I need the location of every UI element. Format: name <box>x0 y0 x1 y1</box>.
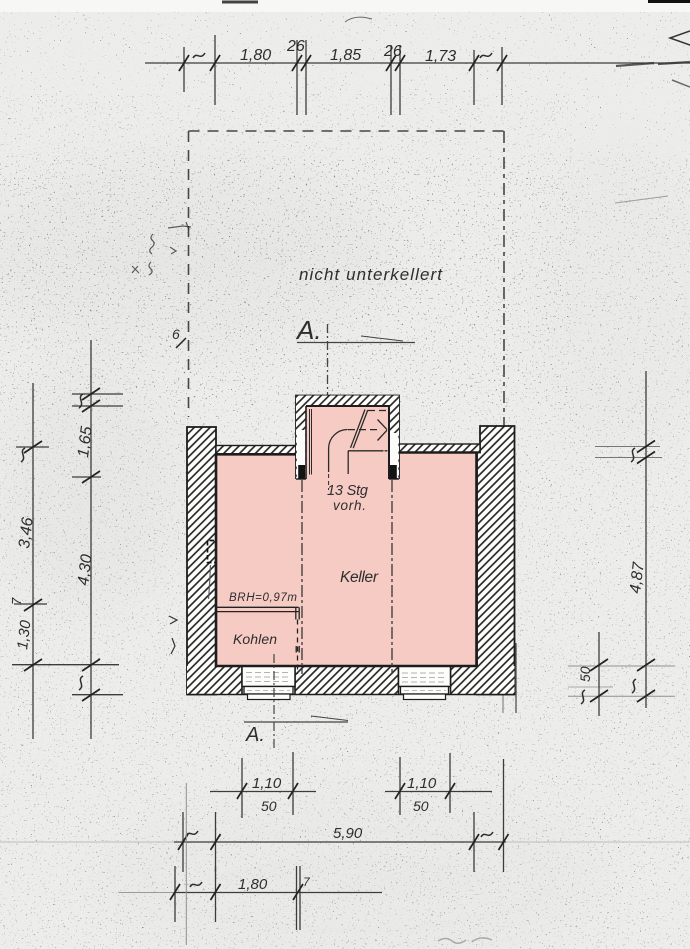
svg-text:1,10: 1,10 <box>252 775 282 792</box>
svg-text:nicht unterkellert: nicht unterkellert <box>299 265 443 284</box>
svg-text:1,85: 1,85 <box>330 47 361 64</box>
svg-text:7: 7 <box>9 597 24 605</box>
svg-text:1,80: 1,80 <box>238 876 268 893</box>
svg-text:1,73: 1,73 <box>425 48 456 65</box>
svg-text:5,90: 5,90 <box>333 825 363 842</box>
svg-text:vorh.: vorh. <box>333 498 366 513</box>
svg-text:A.: A. <box>295 315 322 345</box>
svg-text:6: 6 <box>172 326 180 342</box>
svg-text:1,30: 1,30 <box>14 619 35 651</box>
svg-text:13 Stg: 13 Stg <box>327 483 368 499</box>
svg-text:Kohlen: Kohlen <box>233 631 277 647</box>
svg-text:BRH=0,97m: BRH=0,97m <box>229 592 297 604</box>
svg-text:A.: A. <box>245 724 265 746</box>
svg-text:26: 26 <box>383 43 402 60</box>
svg-text:50: 50 <box>413 798 429 814</box>
svg-text:1,10: 1,10 <box>407 775 437 792</box>
svg-text:Keller: Keller <box>340 569 379 586</box>
svg-text:50: 50 <box>577 666 593 682</box>
svg-text:1,80: 1,80 <box>240 47 271 64</box>
svg-text:26: 26 <box>286 38 305 55</box>
svg-text:50: 50 <box>261 798 277 814</box>
